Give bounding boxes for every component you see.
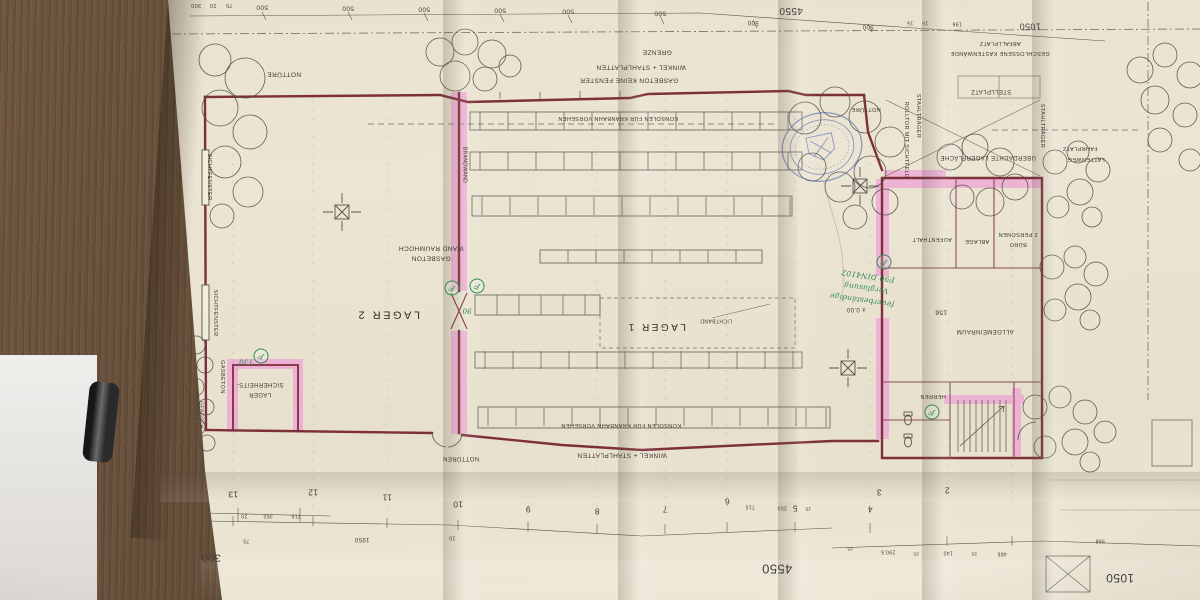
grid-number: 3 — [876, 488, 881, 497]
label-gebuesch: GEBÜSCH — [198, 401, 203, 429]
dim-15: 15 — [922, 20, 928, 25]
handwriting-t90: 90 — [462, 307, 471, 314]
label-ueberdachte: ÜBERDACHTE LAGERFLÄCHE — [940, 154, 1036, 160]
dim-715: 715 — [745, 504, 755, 509]
pencil-squiggle — [824, 182, 843, 302]
dim-500: 500 — [747, 19, 758, 25]
dim-500: 500 — [342, 4, 354, 11]
dim-1950: 1950 — [355, 536, 370, 542]
label-stellplatz: STELLPLATZ — [971, 88, 1012, 94]
dim-350: 350 — [263, 513, 273, 518]
label-lager2: LAGER 2 — [356, 309, 420, 320]
label-wand-raumhoch: WAND RAUMHOCH — [399, 244, 464, 251]
grid-number: 2 — [944, 486, 949, 495]
label-brandwand: BRANDWAND — [462, 147, 467, 183]
grid-number: 5 — [792, 504, 797, 513]
label-konsolen-bottom: KONSOLEN FÜR KRANBAHN VORSEHEN — [561, 421, 681, 427]
dim-485: 485 — [997, 551, 1007, 556]
dim-25: 25 — [971, 551, 977, 556]
grid-number: 6 — [724, 497, 729, 506]
dim-25: 25 — [913, 551, 919, 556]
dim-25: 25 — [805, 506, 811, 511]
grid-number: 11 — [382, 493, 392, 502]
dim-1050-bottom: 1050 — [1106, 572, 1134, 584]
dim-500: 500 — [862, 23, 873, 29]
dim-75: 75 — [243, 538, 249, 543]
dim-15: 15 — [907, 20, 913, 25]
label-buero-personen: 2 PERSONEN — [998, 230, 1037, 236]
dim-300-top: 300 — [191, 1, 201, 7]
label-rolltor: ROLLTOR MIT SICHTFELD — [902, 102, 908, 179]
dim-300-bottom: 300 — [201, 552, 221, 563]
label-ablage: ABLAGE — [965, 237, 989, 243]
dim-20: 20 — [449, 535, 455, 540]
highlighted-fire-walls — [227, 92, 1042, 456]
handwriting-t30: T30 — [239, 358, 253, 365]
label-sichtfenster-1: SICHTFENSTER — [205, 154, 211, 201]
label-winkel-bottom: WINKEL + STAHLPLATTEN — [577, 451, 667, 458]
label-sicherheits-1: SICHERHEITS- — [236, 381, 283, 387]
dim-4550-bottom: 4550 — [762, 563, 793, 576]
label-stahltraeger-1: STAHLTRÄGER — [914, 94, 920, 138]
grid-number: 4 — [867, 505, 872, 514]
label-herren: HERREN — [920, 392, 946, 398]
storage-racking — [470, 112, 830, 428]
site-boundary-lines — [172, 2, 1200, 400]
label-aufenthalt: AUFENTHALT — [912, 235, 952, 241]
misc-plan-details — [1046, 420, 1200, 592]
label-gasbeton-left: GASBETON — [218, 360, 224, 394]
dim-20-top: 20 — [210, 1, 217, 7]
label-buero: BÜRO — [1009, 240, 1027, 246]
label-lichtband: LICHTBAND — [700, 318, 732, 323]
label-sicherheits-2: LAGER — [249, 391, 271, 397]
stairs-wc-doors — [202, 91, 1036, 452]
label-nottueren: NOTTÜREN — [443, 455, 480, 461]
dim-715: 715 — [291, 513, 301, 518]
label-nottuere-left: NOTTÜRE — [267, 70, 301, 77]
label-winkel-top: WINKEL + STAHLPLATTEN — [596, 63, 686, 70]
label-allgemeinraum: ALLGEMEINRAUM — [956, 328, 1013, 334]
photo-of-floor-plan: NOTTÜRE GRENZE WINKEL + STAHLPLATTEN GAS… — [0, 0, 1200, 600]
label-stahltraeger-2: STAHLTRÄGER — [1038, 104, 1044, 148]
grid-number: 9 — [525, 505, 530, 514]
label-konsolen-top: KONSOLEN FÜR KRANBAHN VORSEHEN — [558, 114, 678, 120]
dim-250: 250 — [777, 505, 787, 510]
dim-140: 140 — [943, 550, 953, 555]
label-wand-gasbeton: GASBETON — [411, 254, 450, 261]
dim-196: 196 — [952, 21, 962, 26]
label-grenze: GRENZE — [642, 48, 672, 55]
dim-4550-top: 4550 — [779, 5, 803, 15]
dim-25: 25 — [847, 546, 853, 551]
label-nottuere-right: NOTTÜRE — [851, 105, 880, 111]
dim-500: 500 — [494, 6, 506, 13]
label-lager1: LAGER 1 — [626, 321, 686, 331]
dim-500: 500 — [654, 9, 666, 16]
plan-linework — [0, 0, 1200, 600]
dim-998: 998 — [1095, 538, 1105, 543]
dim-500: 500 — [256, 3, 268, 10]
label-fahrplatz: FAHRPLATZ — [1063, 144, 1098, 150]
label-sichtfenster-2: SICHTFENSTER — [211, 290, 217, 337]
label-gasbeton-keine-fenster: GASBETON KEINE FENSTER — [580, 76, 678, 83]
grid-number: 8 — [594, 507, 599, 516]
label-geschlossene: GESCHLOSSENE KASTENWÄNDE — [950, 49, 1049, 55]
building-walls — [205, 91, 1042, 458]
dim-75-top: 75 — [226, 1, 233, 7]
dim-500: 500 — [418, 5, 430, 12]
grid-number: 7 — [662, 505, 667, 514]
crossed-box-symbols — [323, 167, 879, 387]
dim-1050-top: 1050 — [1019, 22, 1041, 31]
dim-500: 500 — [562, 7, 574, 14]
label-abfallplatz: ABFALLPLATZ — [979, 39, 1020, 45]
label-level-000: ± 0.00 — [846, 306, 865, 312]
label-level-156: 156 — [935, 308, 947, 315]
dim-20: 20 — [241, 513, 247, 518]
grid-number: 13 — [228, 490, 238, 499]
dim-290-5: 290.5 — [881, 549, 896, 554]
grid-number: 10 — [453, 500, 463, 509]
grid-number: 12 — [308, 488, 318, 497]
label-lattenweg: LATTENWEG — [1067, 155, 1104, 161]
